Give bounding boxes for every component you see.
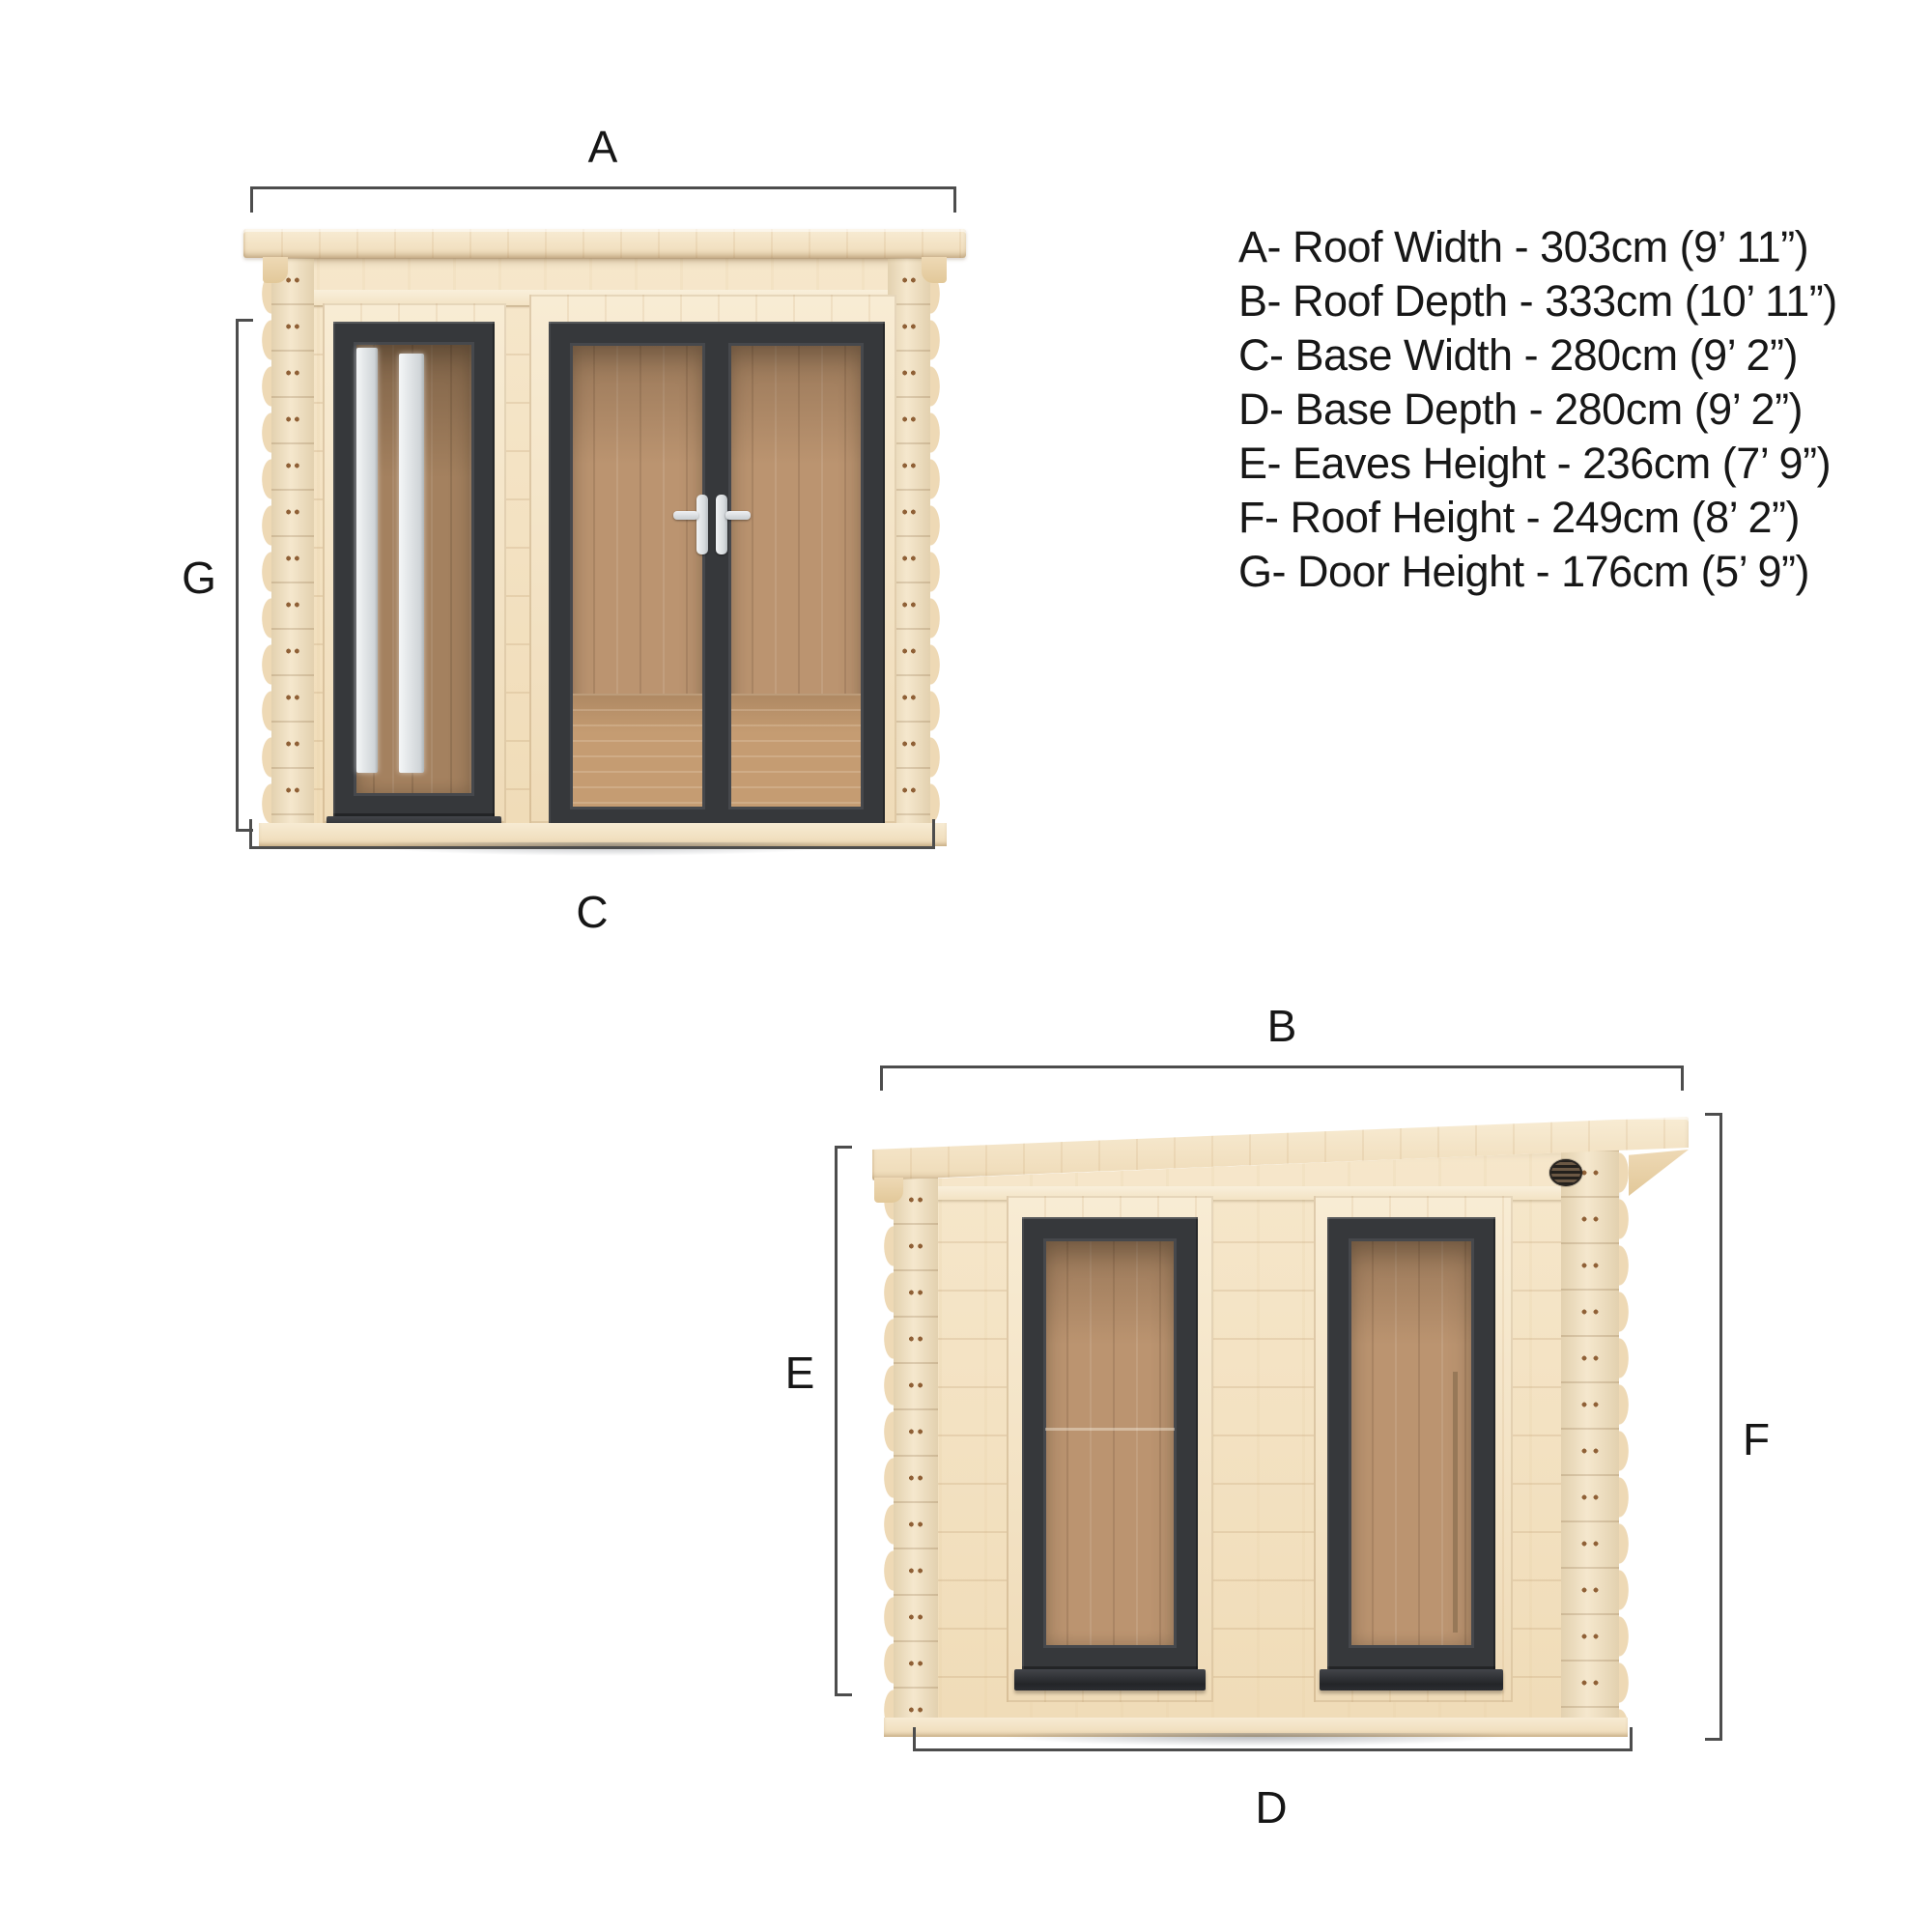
dim-c-tick-right <box>932 819 935 849</box>
door-handle-right-lever <box>725 511 751 520</box>
dim-e-tick-top <box>835 1146 852 1149</box>
dim-f-line <box>1719 1113 1722 1741</box>
spec-line-roof-height: F- Roof Height - 249cm (8’ 2”) <box>1238 491 1837 545</box>
dim-b-tick-left <box>880 1065 883 1091</box>
side-right-corner-scallops <box>1619 1150 1629 1718</box>
front-roof-corbel-right <box>922 257 947 283</box>
dim-e-tick-bottom <box>835 1693 852 1696</box>
spec-line-roof-depth: B- Roof Depth - 333cm (10’ 11”) <box>1238 274 1837 328</box>
spec-line-base-width: C- Base Width - 280cm (9’ 2”) <box>1238 328 1837 383</box>
dim-a-line <box>250 186 956 189</box>
dim-b-label: B <box>1267 1000 1297 1052</box>
dim-g-line <box>236 319 239 832</box>
front-window-inner-casement-strip-2 <box>399 354 424 773</box>
dim-b-line <box>880 1065 1684 1068</box>
front-door-left-interior-floor <box>573 694 702 807</box>
dim-f-label: F <box>1743 1413 1770 1465</box>
side-left-corner-scallops <box>884 1177 894 1718</box>
front-elevation-view: A G <box>0 0 1063 966</box>
side-elevation-view: B E <box>0 966 1932 1932</box>
side-ground-shadow <box>918 1733 1594 1748</box>
dim-c-line <box>249 846 935 849</box>
air-vent-grille <box>1549 1159 1582 1186</box>
dim-g-label: G <box>182 552 216 604</box>
side-roof-corbel-left <box>874 1178 903 1203</box>
dim-e-line <box>835 1146 838 1696</box>
dimension-spec-list: A- Roof Width - 303cm (9’ 11”) B- Roof D… <box>1238 220 1837 599</box>
dim-g-tick-top <box>236 319 253 322</box>
door-handle-left-plate <box>696 495 708 554</box>
dim-f-tick-top <box>1705 1113 1722 1116</box>
spec-line-eaves-height: E- Eaves Height - 236cm (7’ 9”) <box>1238 437 1837 491</box>
dim-c-label: C <box>576 886 608 938</box>
front-left-corner-scallops <box>262 270 271 823</box>
dimension-diagram: A G <box>0 0 1932 1932</box>
side-roof-overhang-wedge <box>1629 1150 1689 1196</box>
door-handle-left-lever <box>673 511 698 520</box>
dim-e-label: E <box>785 1347 815 1399</box>
dim-d-tick-left <box>913 1727 916 1751</box>
door-handle-right-plate <box>716 495 727 554</box>
front-left-corner-logs <box>271 257 314 823</box>
spec-line-door-height: G- Door Height - 176cm (5’ 9”) <box>1238 545 1837 599</box>
side-window-1-glass <box>1043 1238 1177 1648</box>
front-right-corner-scallops <box>930 270 940 823</box>
dim-b-tick-right <box>1681 1065 1684 1091</box>
dim-d-tick-right <box>1630 1727 1633 1751</box>
side-window-2-sill <box>1320 1669 1503 1690</box>
side-right-corner-logs <box>1561 1150 1619 1718</box>
dim-c-tick-left <box>249 819 252 849</box>
side-window-1-interior-shelf-line <box>1045 1428 1175 1431</box>
dim-d-line <box>913 1748 1633 1751</box>
spec-line-roof-width: A- Roof Width - 303cm (9’ 11”) <box>1238 220 1837 274</box>
dim-f-tick-bottom <box>1705 1738 1722 1741</box>
side-left-corner-logs <box>894 1177 938 1718</box>
dim-a-label: A <box>588 121 618 173</box>
front-roof-corbel-left <box>263 257 288 283</box>
side-window-1-sill <box>1014 1669 1206 1690</box>
spec-line-base-depth: D- Base Depth - 280cm (9’ 2”) <box>1238 383 1837 437</box>
front-roof-fascia <box>243 229 966 258</box>
front-ground-shadow <box>290 842 918 858</box>
side-window-2-interior-rod <box>1453 1372 1458 1633</box>
dim-a-tick-right <box>953 186 956 213</box>
dim-d-label: D <box>1255 1781 1287 1833</box>
front-door-right-interior-floor <box>731 694 861 807</box>
front-window-inner-casement-strip-1 <box>356 348 378 773</box>
dim-a-tick-left <box>250 186 253 213</box>
